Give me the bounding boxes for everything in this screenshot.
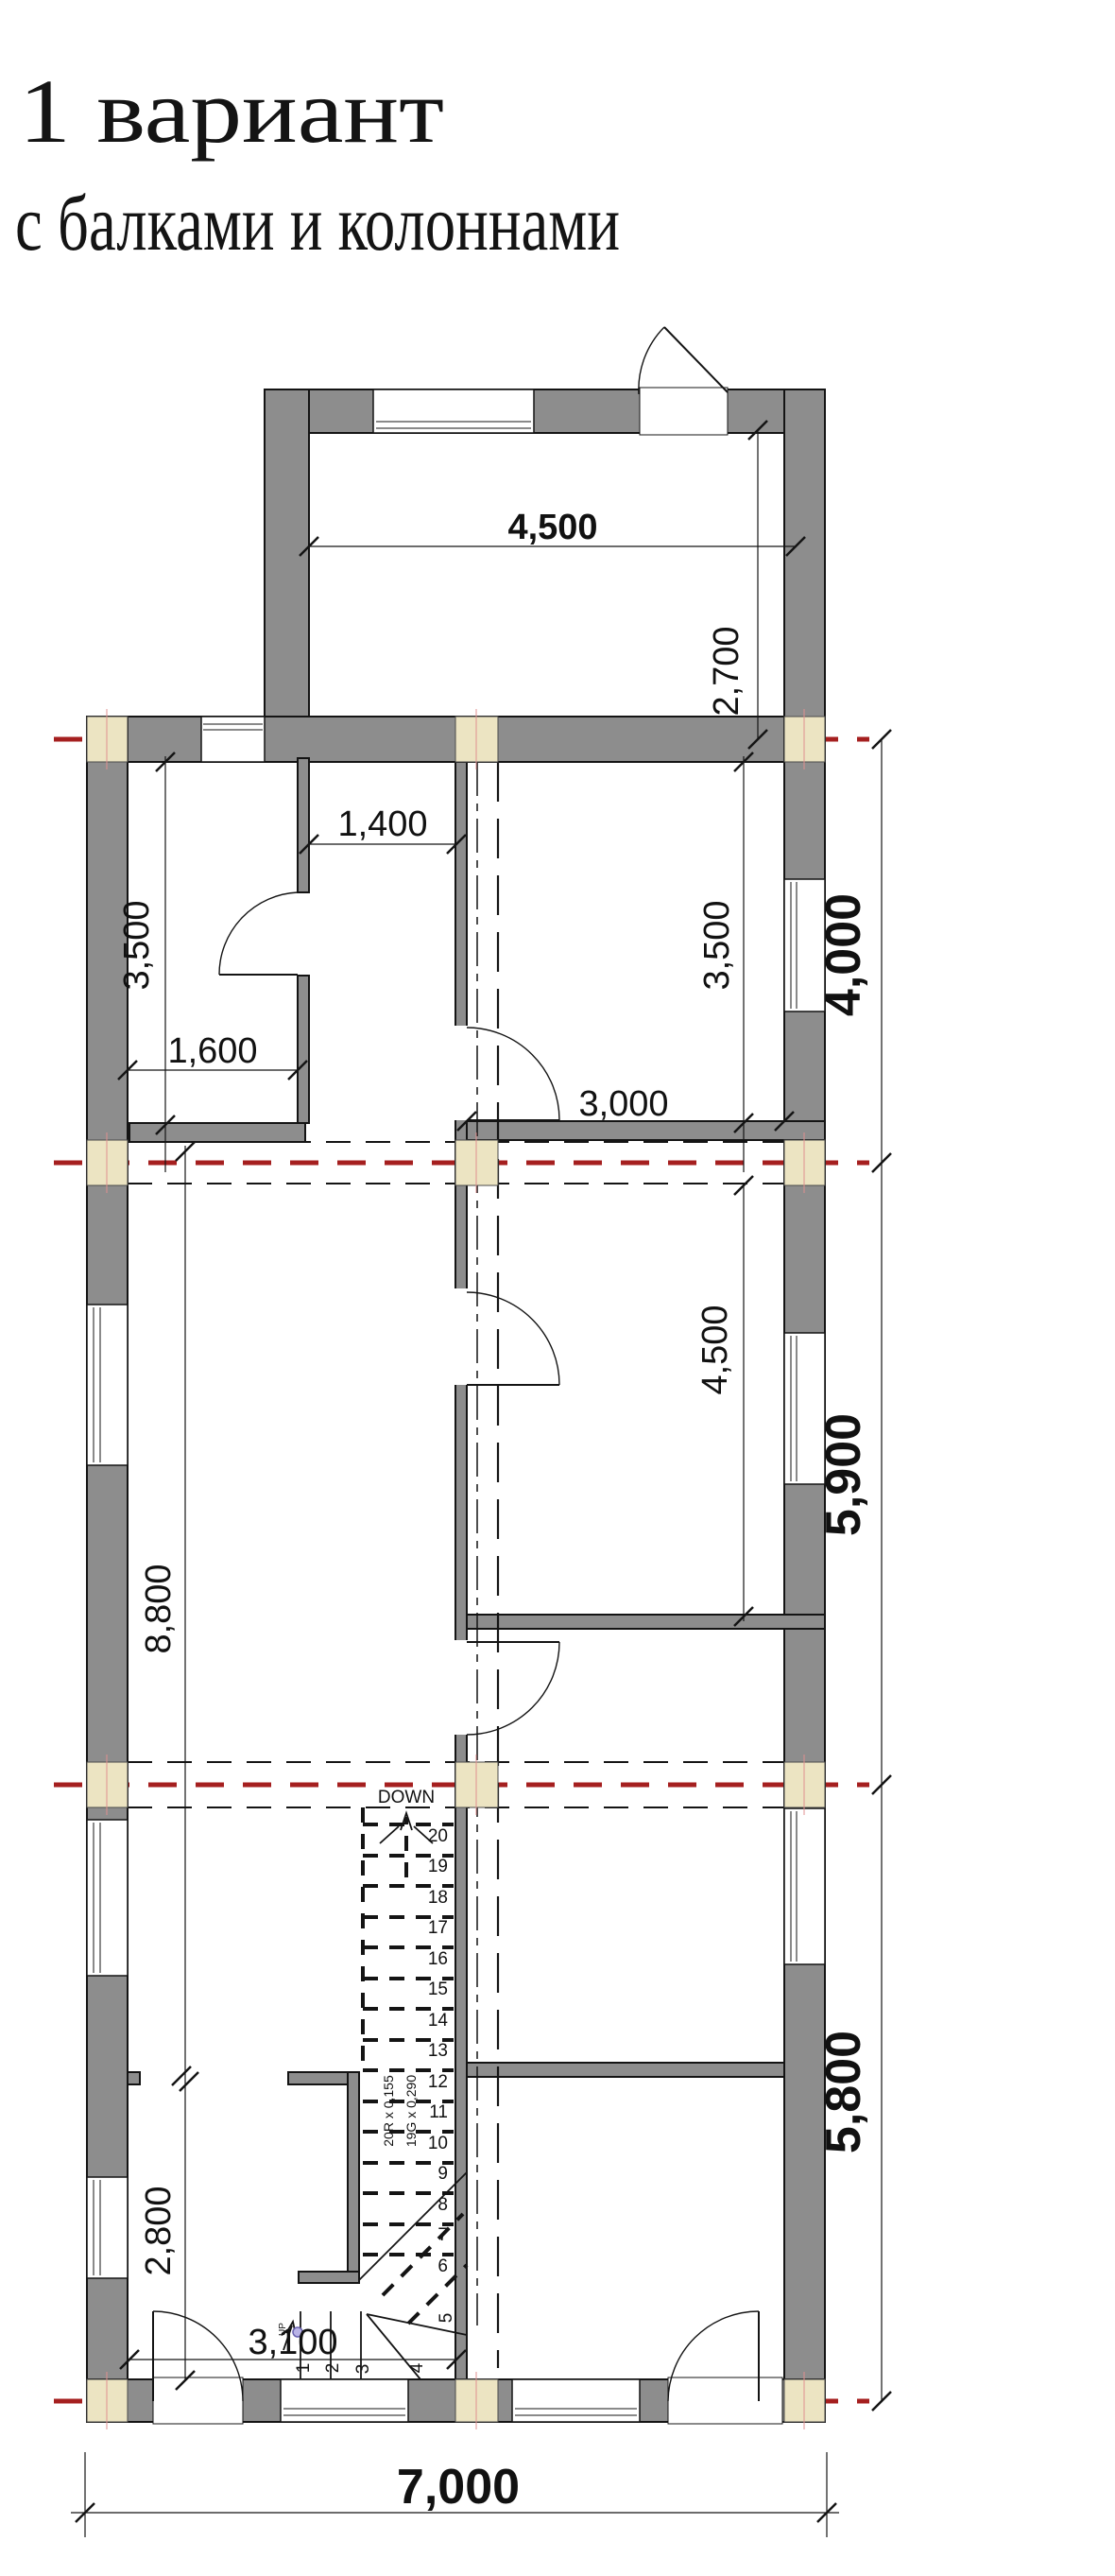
tread-9: 9 xyxy=(437,2164,448,2184)
dim-hall-depth: 8,800 xyxy=(139,1564,179,1653)
column-a3 xyxy=(784,709,825,769)
stair-note-risers: 20R x 0,155 xyxy=(381,2075,396,2147)
column-d2 xyxy=(455,2372,498,2429)
column-a1 xyxy=(87,709,128,769)
column-a2 xyxy=(455,709,498,769)
dim-entry-zone-depth: 2,800 xyxy=(139,2186,179,2275)
tread-20: 20 xyxy=(428,1826,448,1846)
window-bottom-1 xyxy=(281,2379,408,2422)
tread-7: 7 xyxy=(437,2225,448,2245)
floor-plan-page: 1 вариант с балками и колоннами xyxy=(0,0,1115,2576)
dim-hall-opening: 1,400 xyxy=(337,804,427,844)
window-left-2 xyxy=(87,1820,128,1976)
left-room-right-wall-lower xyxy=(298,976,309,1123)
room2-bottom-wall xyxy=(467,1615,825,1629)
window-bottom-2 xyxy=(512,2379,640,2422)
tread-16: 16 xyxy=(428,1949,448,1969)
tread-11: 11 xyxy=(429,2102,448,2122)
column-b3 xyxy=(784,1132,825,1193)
room2-door xyxy=(467,1292,559,1385)
tread-5: 5 xyxy=(437,2313,456,2324)
tread-12: 12 xyxy=(428,2072,448,2092)
dim-stair-zone-width: 3,100 xyxy=(248,2323,337,2362)
window-entrance-top xyxy=(373,389,534,433)
stair-note-goings: 19G x 0,290 xyxy=(403,2075,419,2147)
window-left-3 xyxy=(87,2177,128,2278)
tread-10: 10 xyxy=(428,2134,448,2153)
tread-19: 19 xyxy=(428,1857,448,1876)
entrance-top-wall xyxy=(265,389,825,433)
entrance-door xyxy=(639,327,728,394)
title-line-1: 1 вариант xyxy=(19,61,444,162)
door-opening-2 xyxy=(454,1288,469,1385)
window-left-1 xyxy=(87,1305,128,1465)
middle-partition-wall xyxy=(455,762,467,2379)
closet-right-wall xyxy=(348,2072,359,2283)
door-opening-3 xyxy=(454,1640,469,1735)
entrance-door-opening xyxy=(640,388,728,435)
tread-15: 15 xyxy=(428,1980,448,1999)
column-b1 xyxy=(87,1132,128,1193)
column-d1 xyxy=(87,2372,128,2429)
stair-down-label: DOWN xyxy=(378,1788,435,1807)
window-right-3 xyxy=(784,1808,825,1964)
dim-right-room-width: 3,000 xyxy=(578,1084,668,1124)
front-door-left-opening xyxy=(153,2377,243,2424)
column-c2 xyxy=(455,1755,498,1815)
tread-17: 17 xyxy=(428,1918,448,1938)
room3-bottom-wall xyxy=(467,2063,784,2077)
dim-bay-2: 5,900 xyxy=(816,1413,871,1536)
left-room-bottom-wall xyxy=(129,1123,305,1142)
title-block: 1 вариант с балками и колоннами xyxy=(15,61,620,268)
dim-entrance-width: 4,500 xyxy=(507,508,597,547)
column-c1 xyxy=(87,1755,128,1815)
title-line-2: с балками и колоннами xyxy=(15,180,620,268)
window-axis-a-left xyxy=(201,717,265,762)
tread-14: 14 xyxy=(428,2011,449,2031)
dim-total-width: 7,000 xyxy=(397,2460,520,2515)
dimension-texts: 4,500 2,700 1,400 3,500 3,500 4,000 1,60… xyxy=(117,508,871,2515)
dim-bay-1: 4,000 xyxy=(816,893,871,1016)
tread-3: 3 xyxy=(353,2364,373,2375)
dim-middle-room-depth: 4,500 xyxy=(695,1305,735,1394)
left-room-right-wall-upper xyxy=(298,758,309,892)
closet-bottom-wall xyxy=(299,2272,359,2283)
tread-1: 1 xyxy=(294,2363,314,2374)
tread-13: 13 xyxy=(428,2041,448,2061)
room3-door xyxy=(467,1642,559,1735)
section-lines xyxy=(477,762,498,2368)
room1-bottom-wall xyxy=(467,1121,825,1140)
tread-6: 6 xyxy=(437,2256,448,2276)
dim-bay-3: 5,800 xyxy=(816,2031,871,2153)
column-b2 xyxy=(455,1132,498,1193)
tread-2: 2 xyxy=(323,2363,343,2374)
door-opening-1 xyxy=(454,1026,469,1120)
front-door-right-opening xyxy=(668,2377,782,2424)
column-c3 xyxy=(784,1755,825,1815)
left-wall-stub xyxy=(128,2072,140,2084)
tread-4: 4 xyxy=(407,2362,427,2373)
column-d3 xyxy=(784,2372,825,2429)
left-room-door xyxy=(219,892,298,975)
floor-plan-drawing: 1 вариант с балками и колоннами xyxy=(0,0,1115,2576)
room1-door xyxy=(467,1028,559,1120)
dim-left-room-depth: 3,500 xyxy=(117,900,157,990)
stair-up-label: UP xyxy=(278,2323,288,2336)
dim-left-room-width: 1,600 xyxy=(167,1031,257,1071)
tread-8: 8 xyxy=(437,2195,448,2215)
dim-right-room-depth: 3,500 xyxy=(697,900,737,990)
dim-entrance-depth: 2,700 xyxy=(707,626,746,716)
tread-18: 18 xyxy=(428,1888,448,1908)
